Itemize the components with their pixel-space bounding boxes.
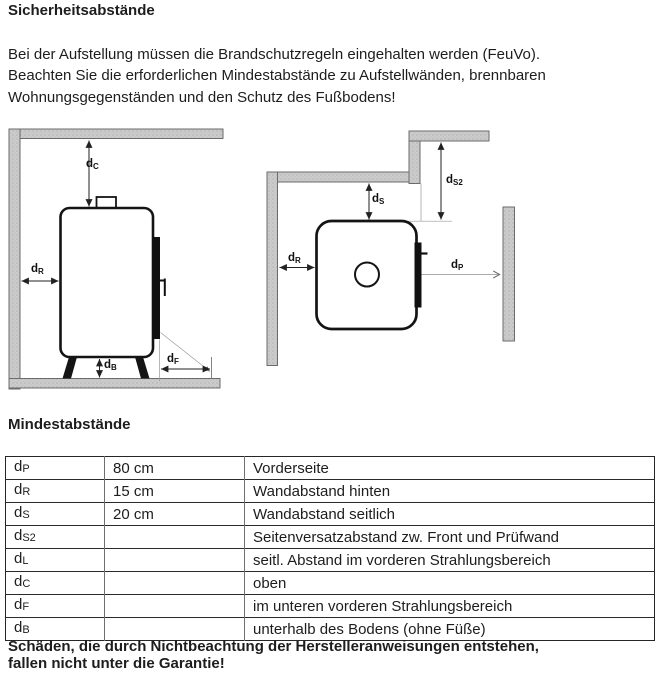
- dim-label-db: dB: [104, 359, 117, 374]
- table-row: dF im unteren vorderen Strahlungsbereich: [6, 595, 655, 618]
- value-cell: [105, 526, 245, 549]
- symbol-cell: dR: [6, 480, 105, 503]
- safety-distance-diagram: dC dR dB dF dS dS2 dR dP: [0, 110, 669, 400]
- dim-label-dp: dP: [451, 259, 463, 274]
- side-view-rear-wall: [9, 129, 20, 389]
- desc-cell: Vorderseite: [245, 457, 655, 480]
- min-distances-table: dP 80 cm Vorderseite dR 15 cm Wandabstan…: [5, 456, 655, 641]
- side-view: [9, 129, 223, 389]
- plan-side-wall: [267, 172, 278, 366]
- section-title-mindestabstaende: Mindestabstände: [8, 416, 131, 433]
- stove-leg-right: [135, 357, 150, 379]
- dim-label-ds2: dS2: [446, 174, 463, 189]
- intro-line: Beachten Sie die erforderlichen Mindesta…: [8, 65, 546, 86]
- dim-label-dr-plan: dR: [288, 252, 301, 267]
- plan-view: [267, 131, 515, 366]
- warning-line: fallen nicht unter die Garantie!: [8, 656, 539, 673]
- value-cell: 80 cm: [105, 457, 245, 480]
- table-row: dS2 Seitenversatzabstand zw. Front und P…: [6, 526, 655, 549]
- intro-line: Bei der Aufstellung müssen die Brandschu…: [8, 44, 546, 65]
- plan-offset-wall-connector: [409, 141, 420, 184]
- flue-outlet-plan: [355, 263, 379, 287]
- dim-label-df: dF: [167, 353, 179, 368]
- side-view-ceiling: [9, 129, 223, 139]
- dim-label-dr-side: dR: [31, 263, 44, 278]
- dim-label-dc: dC: [86, 158, 99, 173]
- symbol-cell: dS: [6, 503, 105, 526]
- symbol-cell: dL: [6, 549, 105, 572]
- intro-paragraph: Bei der Aufstellung müssen die Brandschu…: [8, 44, 546, 108]
- intro-line: Wohnungsgegenständen und den Schutz des …: [8, 87, 546, 108]
- value-cell: [105, 549, 245, 572]
- value-cell: 20 cm: [105, 503, 245, 526]
- symbol-cell: dC: [6, 572, 105, 595]
- table-row: dP 80 cm Vorderseite: [6, 457, 655, 480]
- side-view-floor: [9, 379, 220, 389]
- stove-leg-left: [63, 357, 78, 379]
- value-cell: [105, 595, 245, 618]
- value-cell: 15 cm: [105, 480, 245, 503]
- plan-rear-wall: [267, 172, 420, 182]
- plan-test-wall: [503, 207, 515, 341]
- stove-body-side: [61, 208, 154, 357]
- symbol-cell: dS2: [6, 526, 105, 549]
- desc-cell: Seitenversatzabstand zw. Front und Prüfw…: [245, 526, 655, 549]
- page-title: Sicherheitsabstände: [8, 2, 155, 19]
- dim-label-ds: dS: [372, 193, 384, 208]
- table-row: dL seitl. Abstand im vorderen Strahlungs…: [6, 549, 655, 572]
- symbol-cell: dP: [6, 457, 105, 480]
- table-row: dC oben: [6, 572, 655, 595]
- diagram-svg: [0, 110, 669, 400]
- symbol-cell: dF: [6, 595, 105, 618]
- stove-door-plan: [415, 243, 422, 308]
- desc-cell: Wandabstand seitlich: [245, 503, 655, 526]
- stove-door-side: [153, 237, 161, 339]
- plan-offset-wall: [409, 131, 489, 141]
- warning-line: Schäden, die durch Nichtbeachtung der He…: [8, 639, 539, 656]
- table-row: dS 20 cm Wandabstand seitlich: [6, 503, 655, 526]
- desc-cell: Wandabstand hinten: [245, 480, 655, 503]
- door-handle-side: [160, 279, 165, 297]
- value-cell: [105, 572, 245, 595]
- warranty-warning: Schäden, die durch Nichtbeachtung der He…: [8, 639, 539, 672]
- desc-cell: oben: [245, 572, 655, 595]
- desc-cell: im unteren vorderen Strahlungsbereich: [245, 595, 655, 618]
- manual-page: Sicherheitsabstände Bei der Aufstellung …: [0, 0, 669, 680]
- desc-cell: seitl. Abstand im vorderen Strahlungsber…: [245, 549, 655, 572]
- table-row: dR 15 cm Wandabstand hinten: [6, 480, 655, 503]
